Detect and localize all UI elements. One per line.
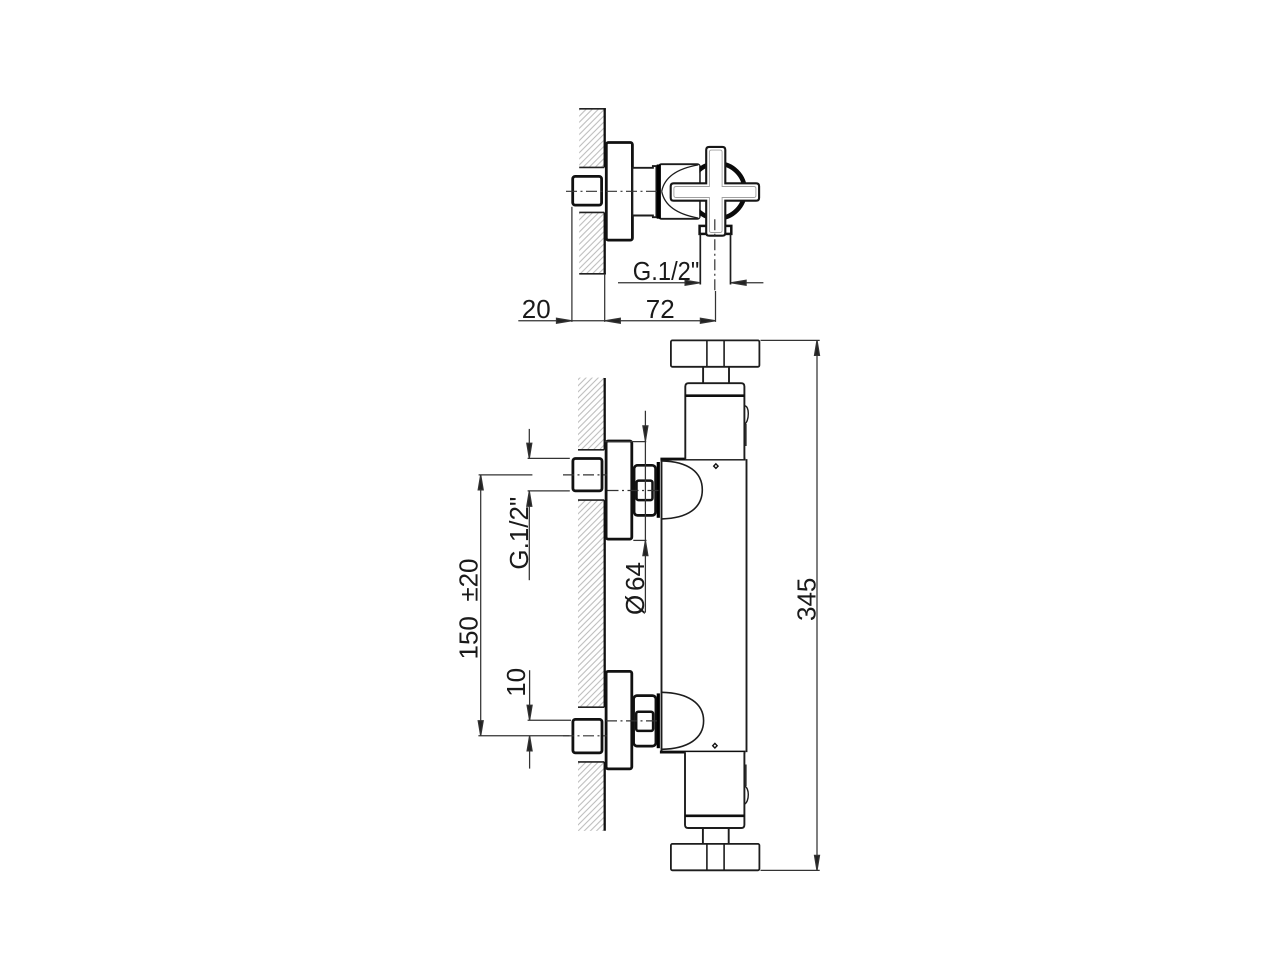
svg-text:72: 72 xyxy=(646,294,675,324)
svg-text:64: 64 xyxy=(620,562,650,591)
svg-text:345: 345 xyxy=(791,578,821,621)
svg-text:150 ±20: 150 ±20 xyxy=(453,558,483,659)
svg-text:G.1/2": G.1/2" xyxy=(504,497,534,570)
svg-text:G.1/2": G.1/2" xyxy=(633,256,700,286)
svg-text:10: 10 xyxy=(501,668,531,697)
svg-text:20: 20 xyxy=(522,294,551,324)
svg-text:Ø: Ø xyxy=(620,595,650,615)
